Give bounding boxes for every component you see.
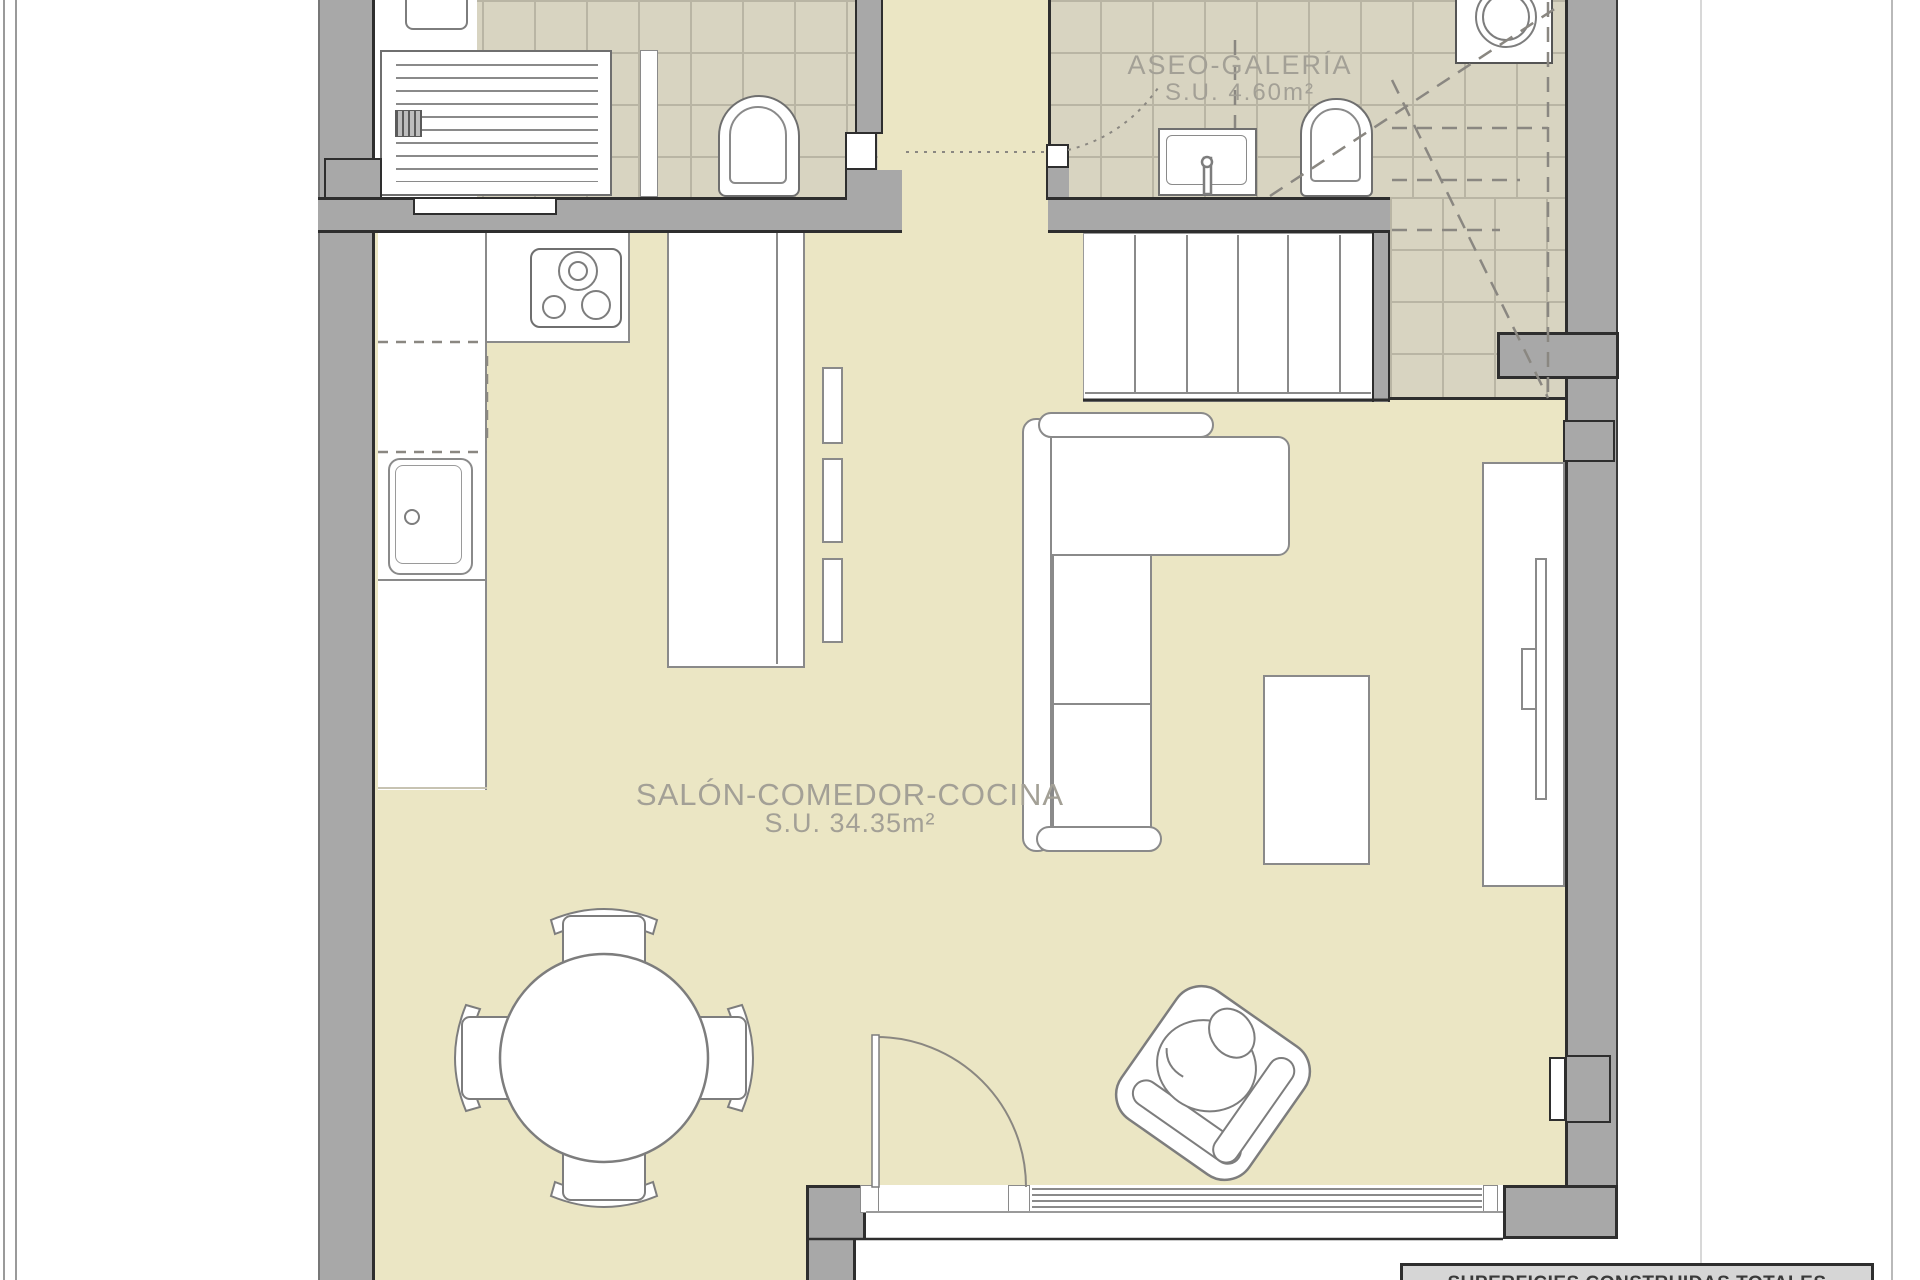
entrance-door — [872, 1035, 1026, 1187]
kitchen-faucet-icon — [405, 510, 419, 524]
stairs-steps — [1083, 235, 1390, 400]
aseo-room-label: ASEO-GALERÍA — [1090, 50, 1390, 81]
salon-area-label: S.U. 34.35m² — [620, 808, 1080, 839]
summary-title-block: SUPERFICIES CONSTRUIDAS TOTALES — [1400, 1263, 1874, 1280]
floorplan-page: ASEO-GALERÍA S.U. 4.60m² SALÓN-COMEDOR-C… — [0, 0, 1920, 1280]
aseo-area-label: S.U. 4.60m² — [1090, 79, 1390, 107]
dining-table — [500, 954, 708, 1162]
hob-burners — [543, 252, 610, 319]
armchair — [1104, 973, 1323, 1192]
plan-linework — [0, 0, 1920, 1280]
cabinet-dashed-lines — [378, 342, 487, 788]
bathroom-faucet-icon — [1202, 157, 1212, 194]
window-lines — [806, 1189, 1503, 1239]
summary-title: SUPERFICIES CONSTRUIDAS TOTALES — [1448, 1273, 1827, 1280]
dining-set — [455, 909, 753, 1207]
